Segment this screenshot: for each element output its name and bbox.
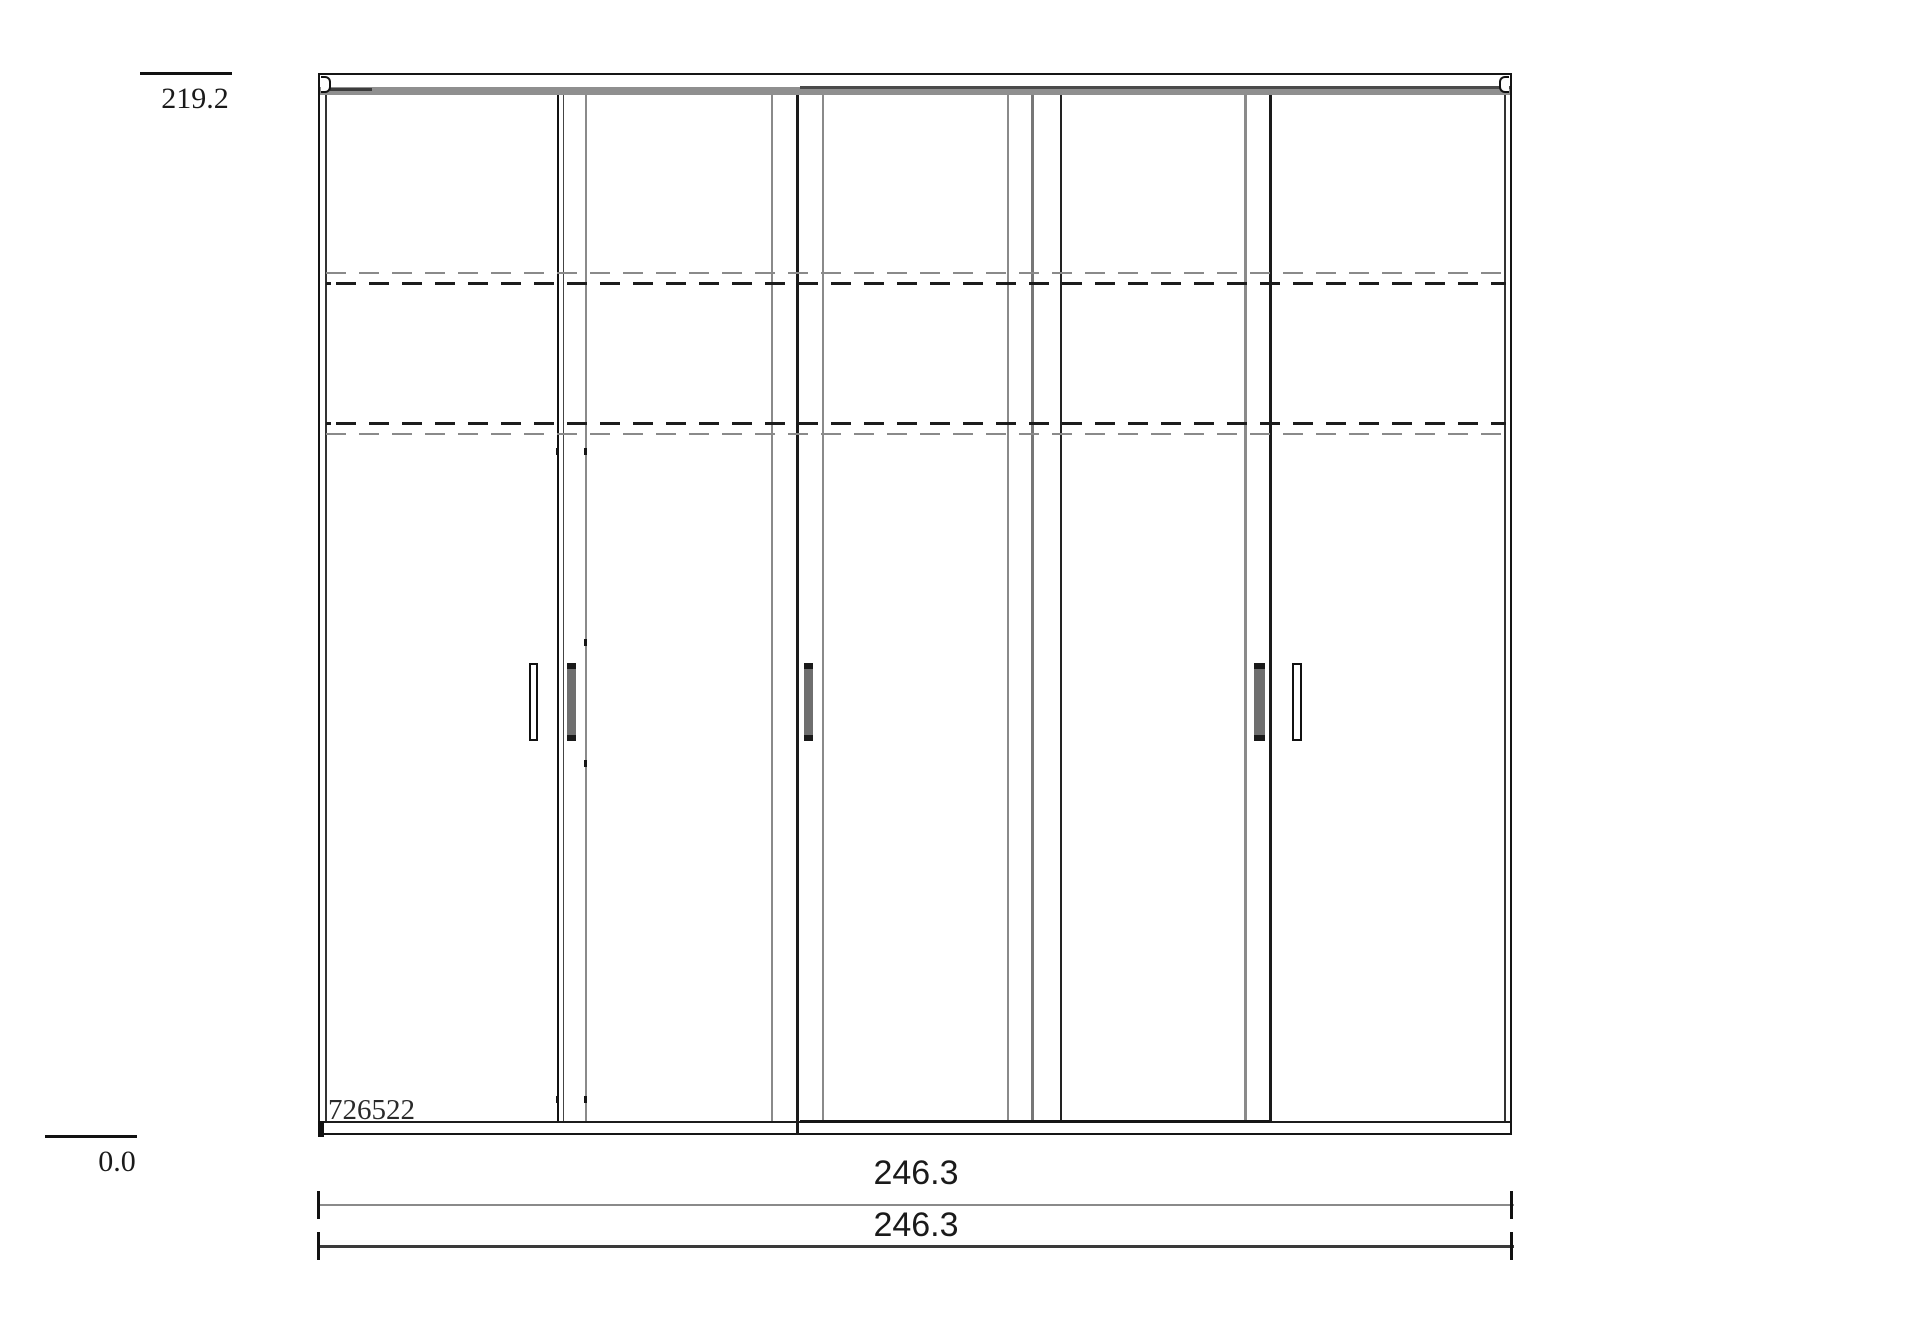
width-dimension-line-2 xyxy=(318,1245,1514,1248)
door-panel-3 xyxy=(799,95,1031,1121)
door-handle xyxy=(529,663,538,741)
door-edge-line xyxy=(585,95,587,1121)
dimension-end-tick xyxy=(1510,1232,1513,1260)
baseline-reference-label: 0.0 xyxy=(72,1147,162,1177)
dimension-end-tick xyxy=(1510,1191,1513,1219)
door-handle xyxy=(1292,663,1302,741)
top-rail-mark-right xyxy=(800,86,1510,89)
center-divider-line xyxy=(796,95,799,1135)
door-edge-line xyxy=(1007,95,1009,1121)
door-panel-5 xyxy=(1272,95,1504,1121)
hinge-mark xyxy=(584,639,587,646)
door-panel-1 xyxy=(327,95,557,1121)
baseline-reference-line xyxy=(45,1135,137,1138)
height-reference-line xyxy=(140,72,232,75)
dimension-end-tick xyxy=(317,1191,320,1219)
dimension-end-tick xyxy=(317,1232,320,1260)
door-edge-line xyxy=(1031,95,1034,1121)
shelf-hidden-line xyxy=(326,422,1506,425)
door-edge-line xyxy=(1060,95,1062,1121)
width-dimension-label-2: 246.3 xyxy=(816,1208,1016,1242)
shelf-hidden-line xyxy=(326,282,1506,285)
width-dimension-label-1: 246.3 xyxy=(816,1156,1016,1190)
plinth-corner-mark xyxy=(318,1121,324,1137)
item-number-label: 726522 xyxy=(328,1096,415,1125)
right-side-panel-line xyxy=(1504,93,1506,1123)
door-bottom-line-heavy xyxy=(800,1120,1270,1123)
door-panel-2 xyxy=(566,95,796,1121)
door-handle xyxy=(567,663,576,741)
height-reference-label: 219.2 xyxy=(145,84,245,114)
door-edge-line xyxy=(1269,95,1272,1121)
door-edge-line xyxy=(1244,95,1247,1121)
top-rail-mark-left xyxy=(330,88,372,91)
wardrobe-elevation-drawing: 219.2 0.0 726522 xyxy=(0,0,1920,1324)
hinge-mark xyxy=(584,760,587,767)
shelf-hidden-line xyxy=(326,272,1506,274)
door-handle xyxy=(1254,663,1265,741)
corner-bracket-right xyxy=(1499,76,1509,93)
hinge-mark xyxy=(584,1096,587,1103)
door-panel-4 xyxy=(1034,95,1269,1121)
hinge-mark xyxy=(584,448,587,455)
hinge-mark xyxy=(556,448,559,455)
door-edge-line xyxy=(557,95,559,1121)
door-handle xyxy=(804,663,813,741)
shelf-hidden-line xyxy=(326,433,1506,435)
hinge-mark xyxy=(556,1096,559,1103)
door-edge-line xyxy=(771,95,773,1121)
door-edge-line xyxy=(563,95,564,1121)
door-edge-line xyxy=(822,95,824,1121)
corner-bracket-left xyxy=(321,76,331,93)
